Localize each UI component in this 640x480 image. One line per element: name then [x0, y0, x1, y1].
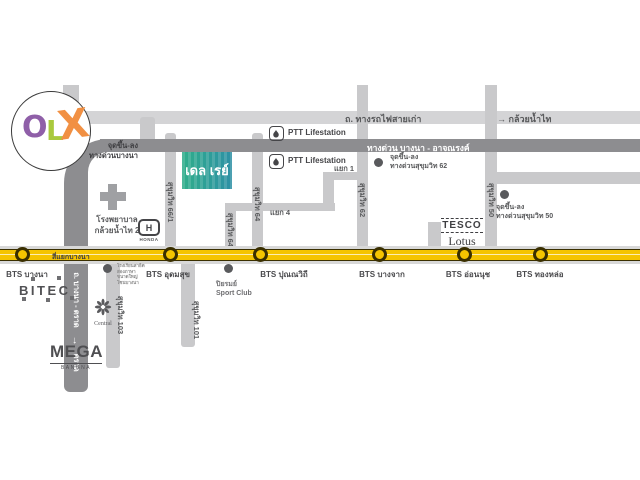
bts-marker-punnawithi [253, 247, 268, 262]
bitec-square-icon [46, 298, 50, 302]
olx-letter-x: X [55, 100, 92, 150]
ramp-62-line1: จุดขึ้น-ลง [390, 153, 447, 162]
ramp-bangna-line1: จุดขึ้น-ลง [84, 141, 138, 151]
bts-marker-thonglor [533, 247, 548, 262]
soi-64-label: สุขุมวิท 64 [251, 187, 263, 221]
bts-marker-bangna [15, 247, 30, 262]
soi-50-label: สุขุมวิท 50 [485, 183, 497, 217]
bitec-square-icon [22, 297, 26, 301]
tesco-text: TESCO [441, 218, 483, 233]
road-soi62 [357, 85, 368, 247]
bitec-logo: BITEC [19, 282, 71, 300]
bangna-intersection-label: สี่แยกบางนา [52, 252, 90, 263]
mega-logo: MEGA BANGNA [50, 342, 102, 371]
ramp-bangna-label: จุดขึ้น-ลง ทางด่วนบางนา [84, 141, 138, 161]
ramp-62-marker [374, 158, 383, 167]
hospital-cross-icon [108, 184, 117, 210]
bts-label-onnut: BTS อ่อนนุช [446, 268, 490, 281]
sportclub-line2: Sport Club [216, 289, 252, 298]
mega-sub-text: BANGNA [50, 365, 102, 371]
olx-watermark: O L X [11, 91, 91, 171]
bitec-square-icon [70, 296, 74, 300]
flame-icon [271, 129, 281, 139]
bitec-text: BITEC [19, 283, 71, 298]
bts-marker-bangchak [372, 247, 387, 262]
bts-marker-onnut [457, 247, 472, 262]
landmark-note: โรงเรียนสาธิต สองภาษา ขนาดใหญ่ โซนบางนา [117, 263, 145, 285]
project-block: เดล เรย์ [182, 152, 232, 189]
honda-label: HONDA [134, 237, 164, 242]
tesco-lotus-logo: TESCO Lotus [441, 218, 483, 249]
honda-logo: H [138, 219, 160, 236]
mega-text: MEGA [50, 342, 102, 364]
railway-road-label: ถ. ทางรถไฟสายเก่า [345, 112, 421, 126]
ramp-62-label: จุดขึ้น-ลง ทางด่วนสุขุมวิท 62 [390, 153, 447, 171]
bts-label-bangna: BTS บางนา [6, 268, 48, 281]
central-logo: Central [90, 298, 116, 327]
ptt-icon-1 [269, 126, 284, 141]
ptt-icon-2 [269, 154, 284, 169]
map-canvas: ถ. ทางรถไฟสายเก่า → กล้วยน้ำไท ทางด่วน บ… [0, 0, 640, 480]
bitec-square-icon [57, 276, 61, 280]
bts-label-bangchak: BTS บางจาก [359, 268, 405, 281]
note-line1: โรงเรียนสาธิต [117, 263, 145, 269]
note-line4: โซนบางนา [117, 280, 145, 286]
sportclub-line1: ปิยรมย์ [216, 280, 252, 289]
yaek4-label: แยก 4 [270, 207, 290, 219]
olx-letter-o: O [22, 110, 48, 145]
soi-101-label: สุขุมวิท 101 [190, 301, 202, 339]
ptt-label-2: PTT Lifestation [288, 156, 346, 165]
central-flower-icon [94, 298, 112, 316]
road-right-horizontal [497, 172, 640, 184]
honda-letter: H [146, 223, 153, 233]
ramp-bangna-line2: ทางด่วนบางนา [84, 151, 138, 161]
project-name: เดล เรย์ [185, 160, 229, 181]
bts-marker-udomsuk [163, 247, 178, 262]
bts-label-punnawithi: BTS ปุณณวิถี [260, 268, 307, 281]
sportclub-label: ปิยรมย์ Sport Club [216, 280, 252, 298]
ramp-50-marker [500, 190, 509, 199]
ramp-62-line2: ทางด่วนสุขุมวิท 62 [390, 162, 447, 171]
ramp-50-line1: จุดขึ้น-ลง [496, 203, 553, 212]
ramp-50-label: จุดขึ้น-ลง ทางด่วนสุขุมวิท 50 [496, 203, 553, 221]
bts-label-thonglor: BTS ทองหล่อ [516, 268, 563, 281]
kluaynamthai-direction-label: → กล้วยน้ำไท [497, 112, 551, 126]
landmark-note-marker [103, 264, 112, 273]
flame-icon [271, 157, 281, 167]
bitec-square-icon [31, 277, 35, 281]
road-tesco-stub [428, 222, 441, 247]
central-text: Central [90, 321, 116, 327]
soi-66-1-label: สุขุมวิท 66/1 [164, 182, 176, 223]
sportclub-marker [224, 264, 233, 273]
bts-label-udomsuk: BTS อุดมสุข [146, 268, 190, 281]
ramp-50-line2: ทางด่วนสุขุมวิท 50 [496, 212, 553, 221]
soi-62-label: สุขุมวิท 62 [356, 183, 368, 217]
road-soi50 [485, 85, 497, 247]
ptt-label-1: PTT Lifestation [288, 128, 346, 137]
bangna-trat-name: ถ. บางนา - ตราด [70, 272, 82, 327]
